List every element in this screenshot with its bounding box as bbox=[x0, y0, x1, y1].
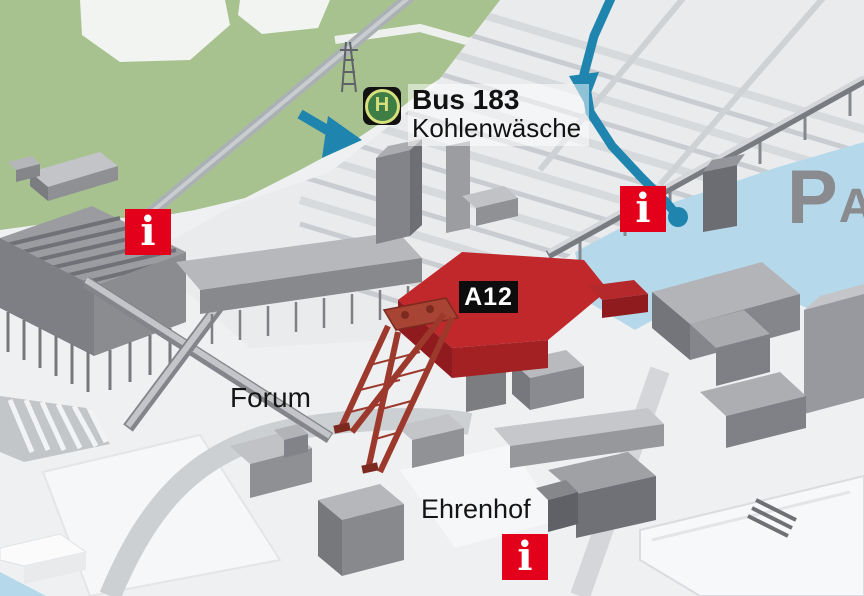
parking-zone-id: A2 bbox=[839, 185, 864, 229]
bus-stop-label: Bus 183 Kohlenwäsche bbox=[408, 84, 589, 146]
parking-a2-label: P A2 bbox=[787, 167, 864, 229]
parking-p-letter: P bbox=[787, 167, 838, 229]
route-end-dot bbox=[668, 207, 688, 227]
building-a12-badge[interactable]: A12 bbox=[459, 281, 518, 313]
info-marker[interactable]: i bbox=[620, 186, 666, 232]
bus-stop-h-letter: H bbox=[375, 95, 389, 115]
bus-stop-sign[interactable]: H bbox=[363, 87, 401, 125]
info-marker[interactable]: i bbox=[125, 209, 171, 255]
ehrenhof-label: Ehrenhof bbox=[421, 494, 531, 525]
bus-stop-h-icon: H bbox=[365, 89, 400, 124]
bus-line-number: Bus 183 bbox=[412, 85, 581, 114]
forum-label: Forum bbox=[230, 382, 311, 414]
info-marker[interactable]: i bbox=[502, 534, 548, 580]
bus-stop-name: Kohlenwäsche bbox=[412, 114, 581, 143]
bridge-building bbox=[446, 141, 470, 233]
site-map: H Bus 183 Kohlenwäsche A12 Forum Ehrenho… bbox=[0, 0, 864, 596]
